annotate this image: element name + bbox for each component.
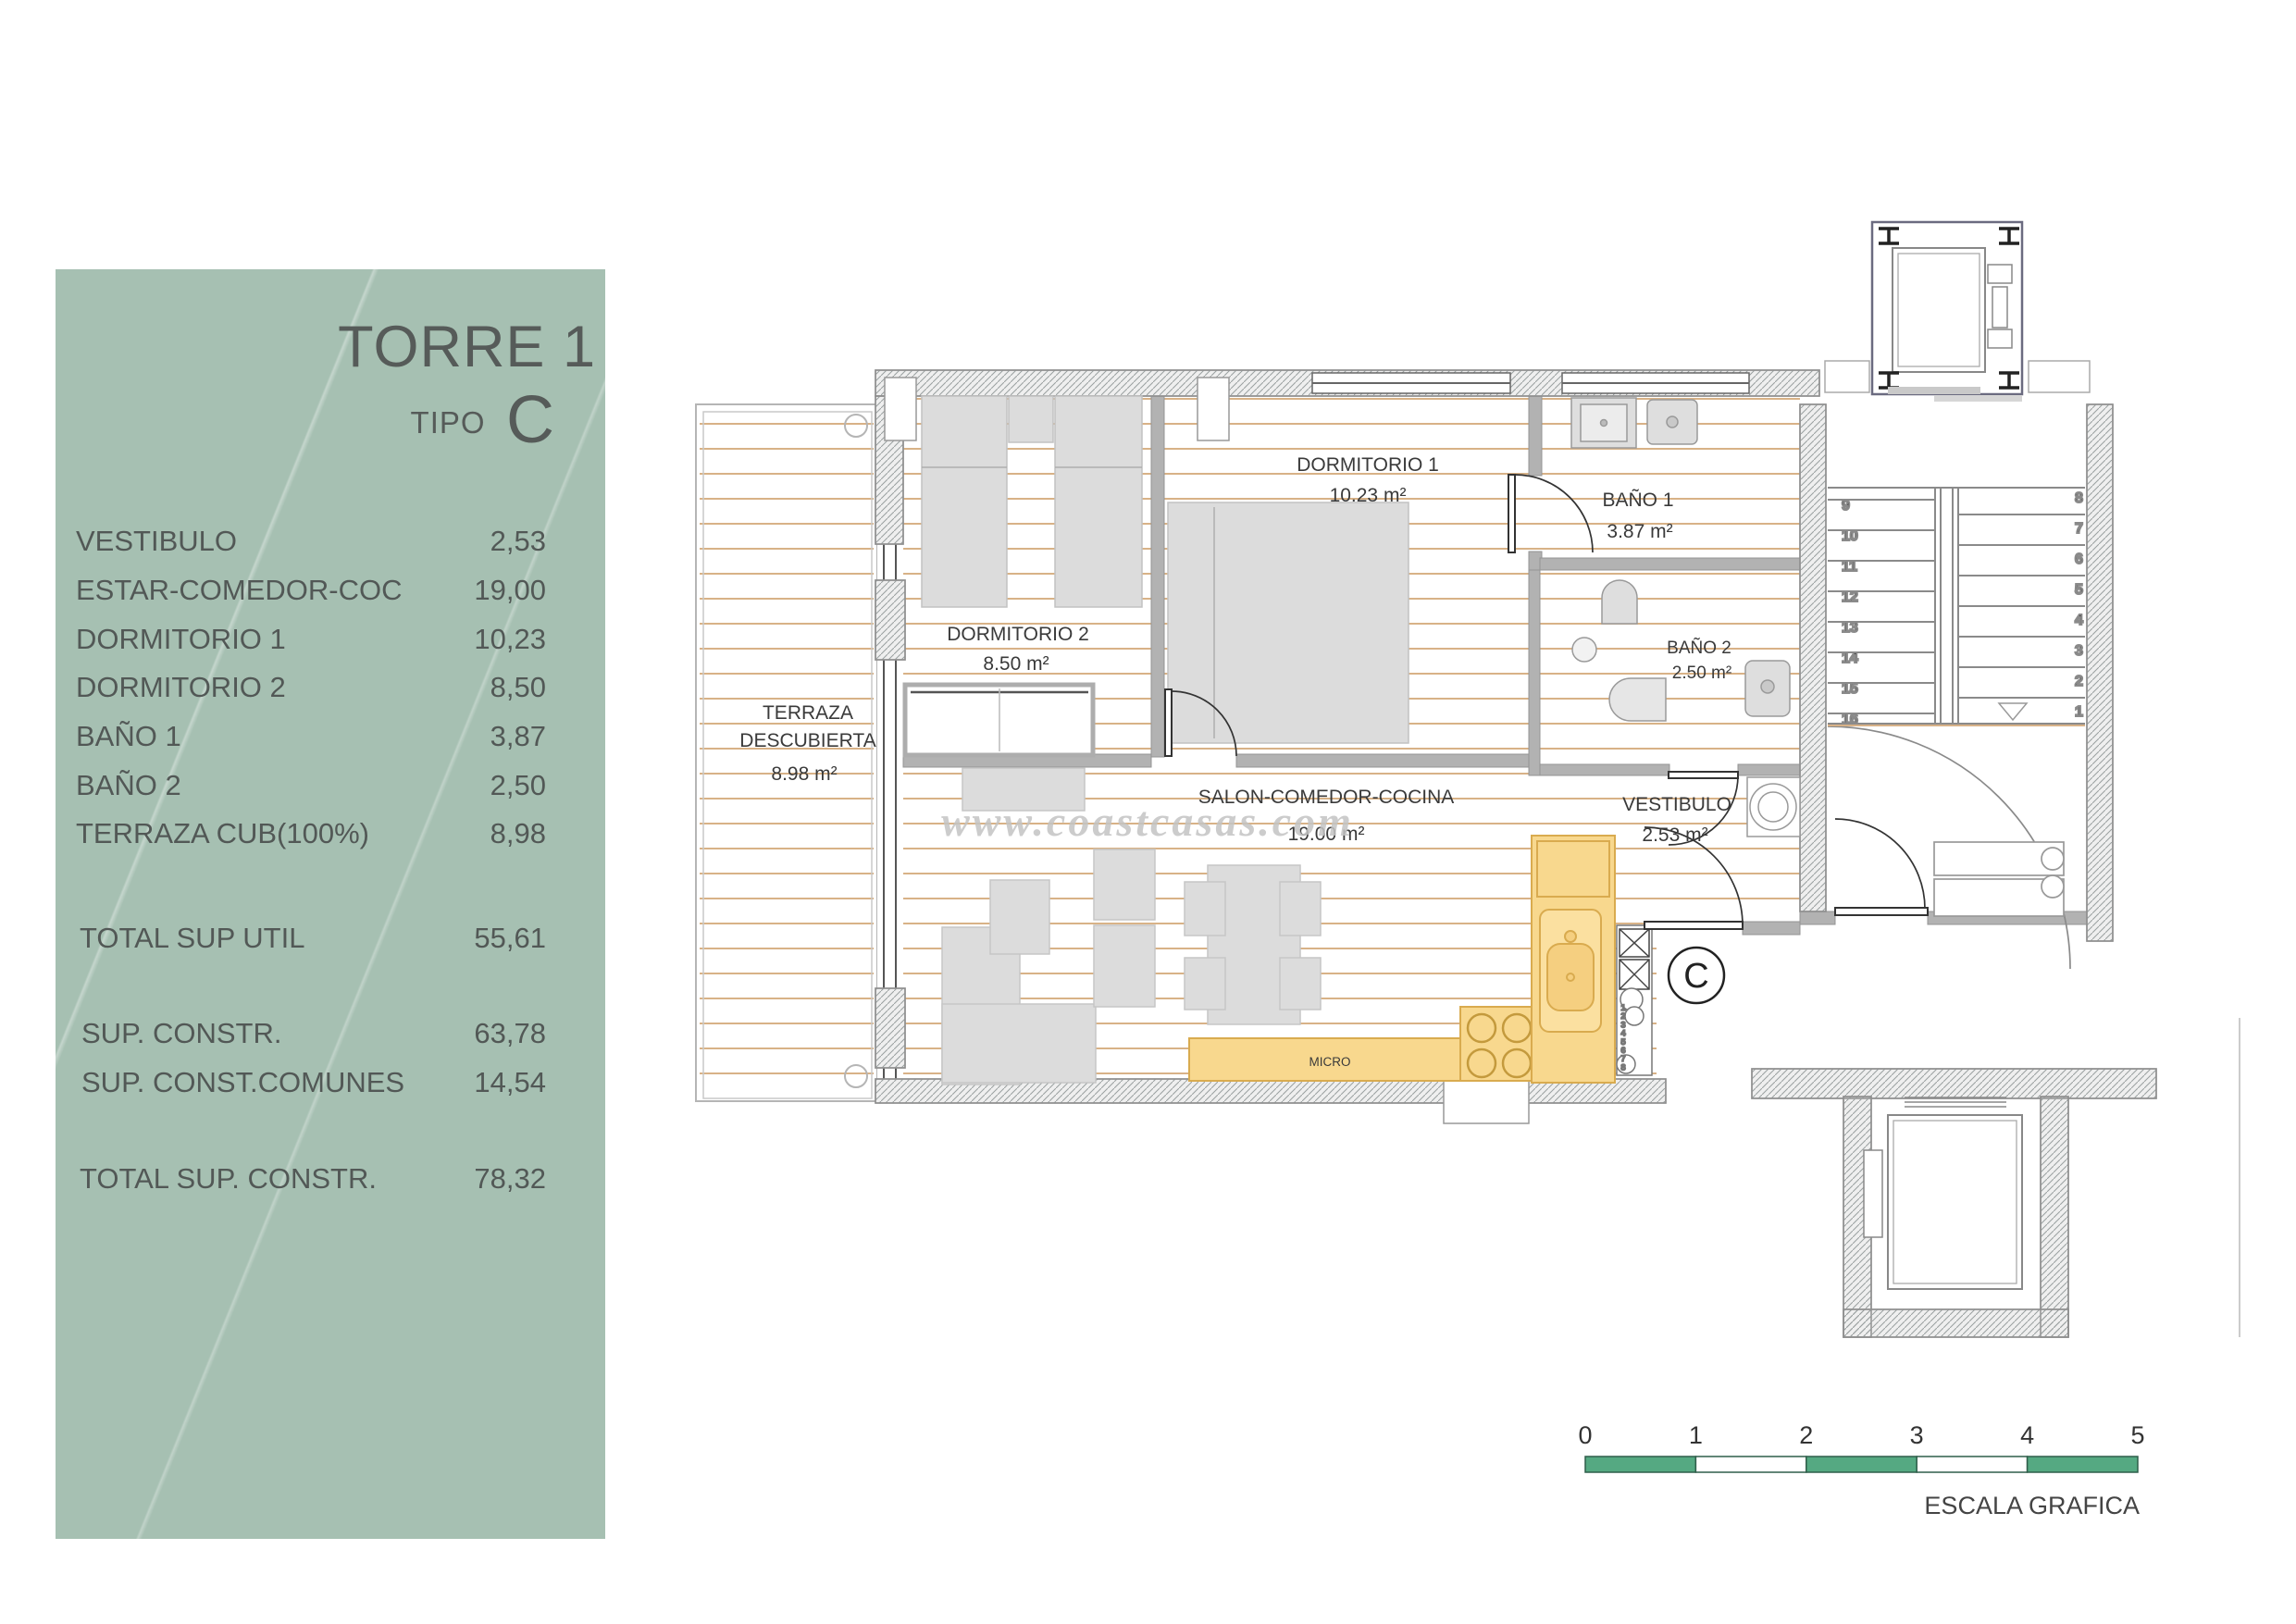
stair-step-number: 5 [2075,582,2083,598]
door-leaf-entrance [1835,908,1928,915]
area-dormitorio1: 10.23 m² [1330,485,1407,506]
wall-unit-right [1198,378,1229,440]
door-swing-entrance [1835,819,1925,909]
dining-chair [1185,882,1225,936]
single-bed-2 [1055,396,1142,607]
tv-unit-top [1094,849,1155,920]
scale-tick-label: 2 [1799,1421,1813,1449]
elevator-top [1825,222,2090,402]
scale-tick-label: 4 [2020,1421,2034,1449]
scale-tick-label: 3 [1910,1421,1924,1449]
label-bano2: BAÑO 2 [1667,638,1731,658]
label-micro: MICRO [1309,1055,1351,1069]
scale-tick-label: 0 [1578,1421,1592,1449]
dining-chair [1185,958,1225,1010]
small-sink [1572,638,1596,662]
label-terraza-line1: TERRAZA [763,702,853,724]
stair-step-number: 1 [2075,704,2083,720]
stair-step-number: 11 [1842,559,1857,575]
label-vestibulo: VESTIBULO [1622,794,1731,815]
door-leaf-bano2 [1669,772,1738,778]
label-dormitorio2: DORMITORIO 2 [947,624,1089,645]
scale-bar-segment [1917,1457,2027,1472]
stair-step-number: 6 [2075,552,2083,567]
sofa [942,1004,1096,1083]
scale-tick-labels: 012345 [1578,1421,2144,1449]
area-terraza: 8.98 m² [771,763,837,785]
stair-step-number: 7 [2075,521,2083,537]
scale-bar-segment [1585,1457,1695,1472]
vent-number: 8 [1620,1062,1625,1072]
area-bano2: 2.50 m² [1672,663,1731,683]
stair-step-number: 4 [2075,613,2083,628]
bottom-wall-pillar [1444,1077,1529,1123]
area-dormitorio2: 8.50 m² [983,653,1049,675]
scale-bar-segment [1806,1457,1917,1472]
toilet [1602,580,1637,624]
stair-step-number: 12 [1842,589,1858,605]
stair-step-number: 10 [1842,528,1858,544]
scale-tick-label: 5 [2130,1421,2144,1449]
unit-letter-badge: C [1669,948,1724,1003]
door-leaf-bano1 [1508,475,1515,552]
stair-step-number: 8 [2075,490,2083,506]
stair-step-number: 13 [1842,620,1858,636]
wardrobe [905,685,1093,755]
scale-tick-label: 1 [1689,1421,1703,1449]
tv-unit-bottom [1094,925,1155,1007]
stair-step-number: 14 [1842,651,1858,666]
stair-step-number: 15 [1842,681,1858,697]
label-bano1: BAÑO 1 [1602,489,1673,511]
terrace [696,404,877,1101]
door-leaf-vestibulo [1644,922,1743,929]
landing-bench [1934,842,2064,916]
scale-bar-segment [1695,1457,1806,1472]
stair-step-number: 3 [2075,643,2083,659]
floor-plan-drawing: 12345678 910111 [0,0,2296,1624]
unit-letter: C [1683,957,1708,996]
stair-step-number: 16 [1842,712,1858,727]
area-bano1: 3.87 m² [1607,521,1672,542]
scale-bar: 012345 ESCALA GRAFICA [1578,1421,2144,1519]
door-leaf-dormitorio1 [1165,689,1172,756]
washing-machine-icon [1750,784,1796,830]
wall-unit-left [885,378,916,440]
stair-step-number: 9 [1842,498,1850,514]
single-bed-1 [922,396,1007,607]
bedroom1-furniture [1168,502,1409,743]
bidet [1609,678,1666,721]
stairwell: 910111213141516 87654321 [1828,488,2085,727]
scale-bar-segment [2028,1457,2138,1472]
nightstand [1009,396,1053,442]
dining-chair [1280,882,1321,936]
scale-caption: ESCALA GRAFICA [1924,1492,2140,1519]
vent-numbers: 12345678 [1620,1003,1626,1072]
label-dormitorio1: DORMITORIO 1 [1297,454,1439,476]
stair-direction-arrow [1999,703,2027,720]
label-terraza-line2: DESCUBIERTA [739,730,875,751]
area-vestibulo: 2.53 m² [1642,824,1707,846]
side-table [990,880,1049,954]
stair-step-numbers-left: 910111213141516 [1842,498,1858,727]
vent-shaft: 12345678 [1617,925,1652,1075]
floor-plan-page: TORRE 1 TIPO C VESTIBULO2,53ESTAR-COMEDO… [0,0,2296,1624]
dining-chair [1280,958,1321,1010]
stair-step-number: 2 [2075,674,2083,689]
watermark: www.coastcasas.com [941,798,1354,845]
double-bed [1168,502,1409,743]
